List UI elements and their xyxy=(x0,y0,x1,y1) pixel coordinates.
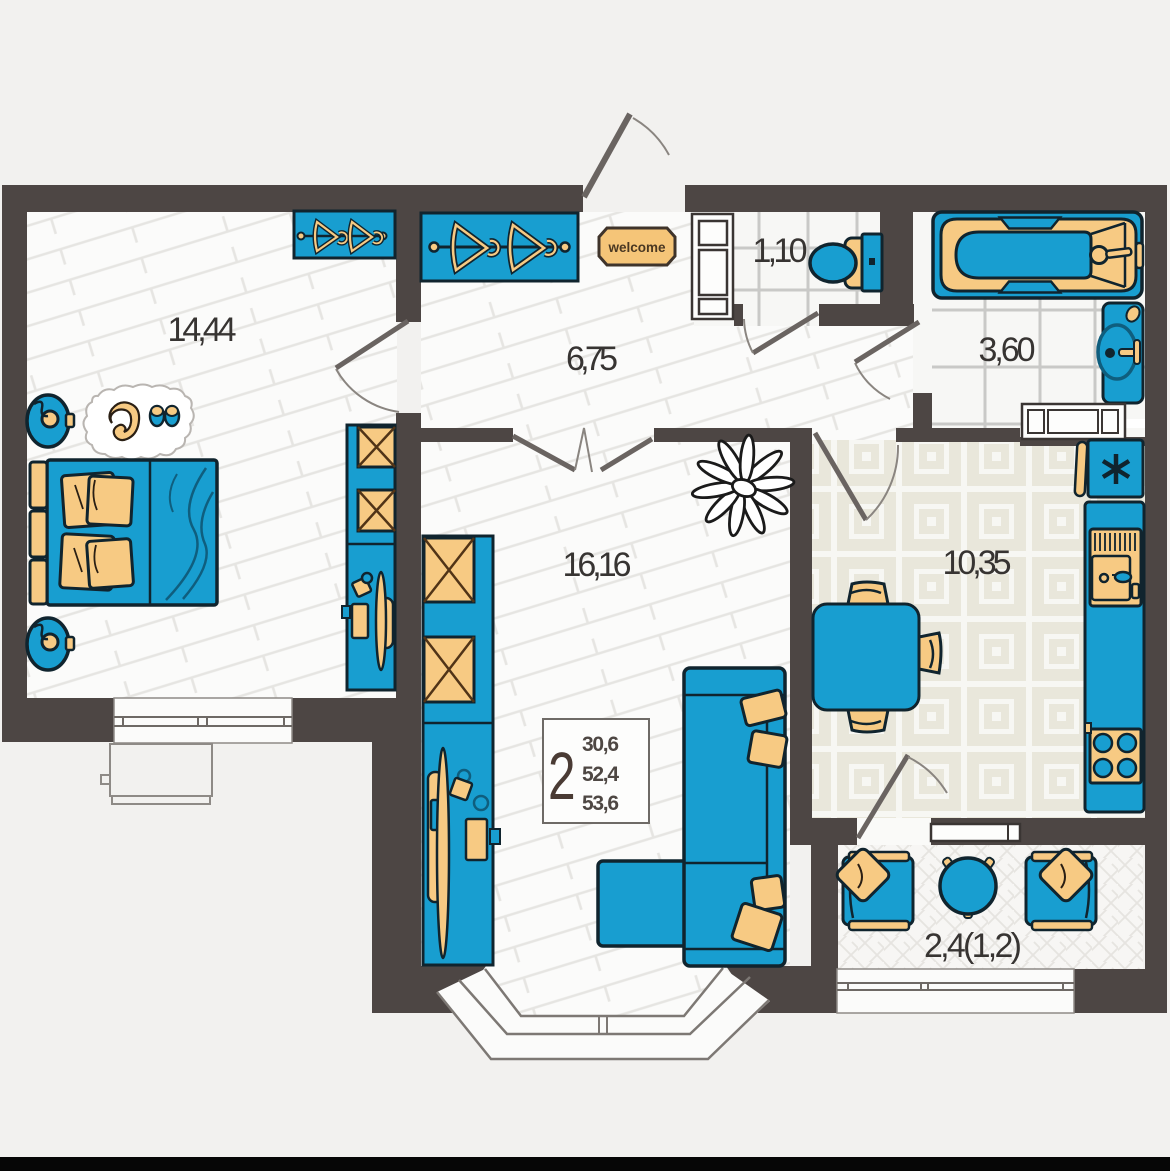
svg-text:30,6: 30,6 xyxy=(582,733,619,756)
svg-text:1,10: 1,10 xyxy=(753,232,808,270)
svg-text:16,16: 16,16 xyxy=(563,546,632,584)
svg-text:2: 2 xyxy=(548,740,576,814)
svg-text:52,4: 52,4 xyxy=(582,763,619,786)
svg-text:53,6: 53,6 xyxy=(582,792,619,815)
svg-text:3,60: 3,60 xyxy=(979,331,1036,369)
svg-text:2,4(1,2): 2,4(1,2) xyxy=(924,927,1022,965)
svg-text:welcome: welcome xyxy=(607,240,666,255)
svg-text:14,44: 14,44 xyxy=(168,311,237,349)
svg-text:10,35: 10,35 xyxy=(943,544,1012,582)
svg-text:6,75: 6,75 xyxy=(566,340,618,378)
